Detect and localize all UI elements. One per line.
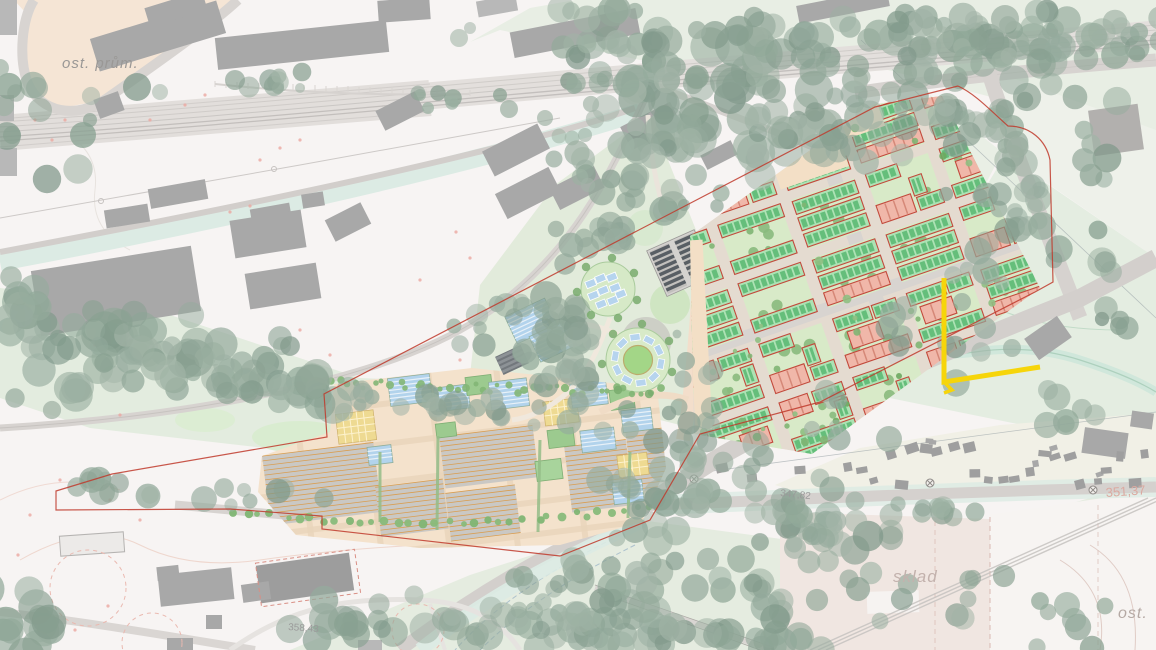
svg-text:351,37: 351,37 (1105, 482, 1146, 500)
svg-text:ost. prům.: ost. prům. (62, 55, 139, 72)
svg-text:ost.: ost. (1118, 605, 1148, 622)
svg-text:358,43: 358,43 (288, 622, 320, 635)
svg-text:sklad: sklad (893, 567, 938, 586)
